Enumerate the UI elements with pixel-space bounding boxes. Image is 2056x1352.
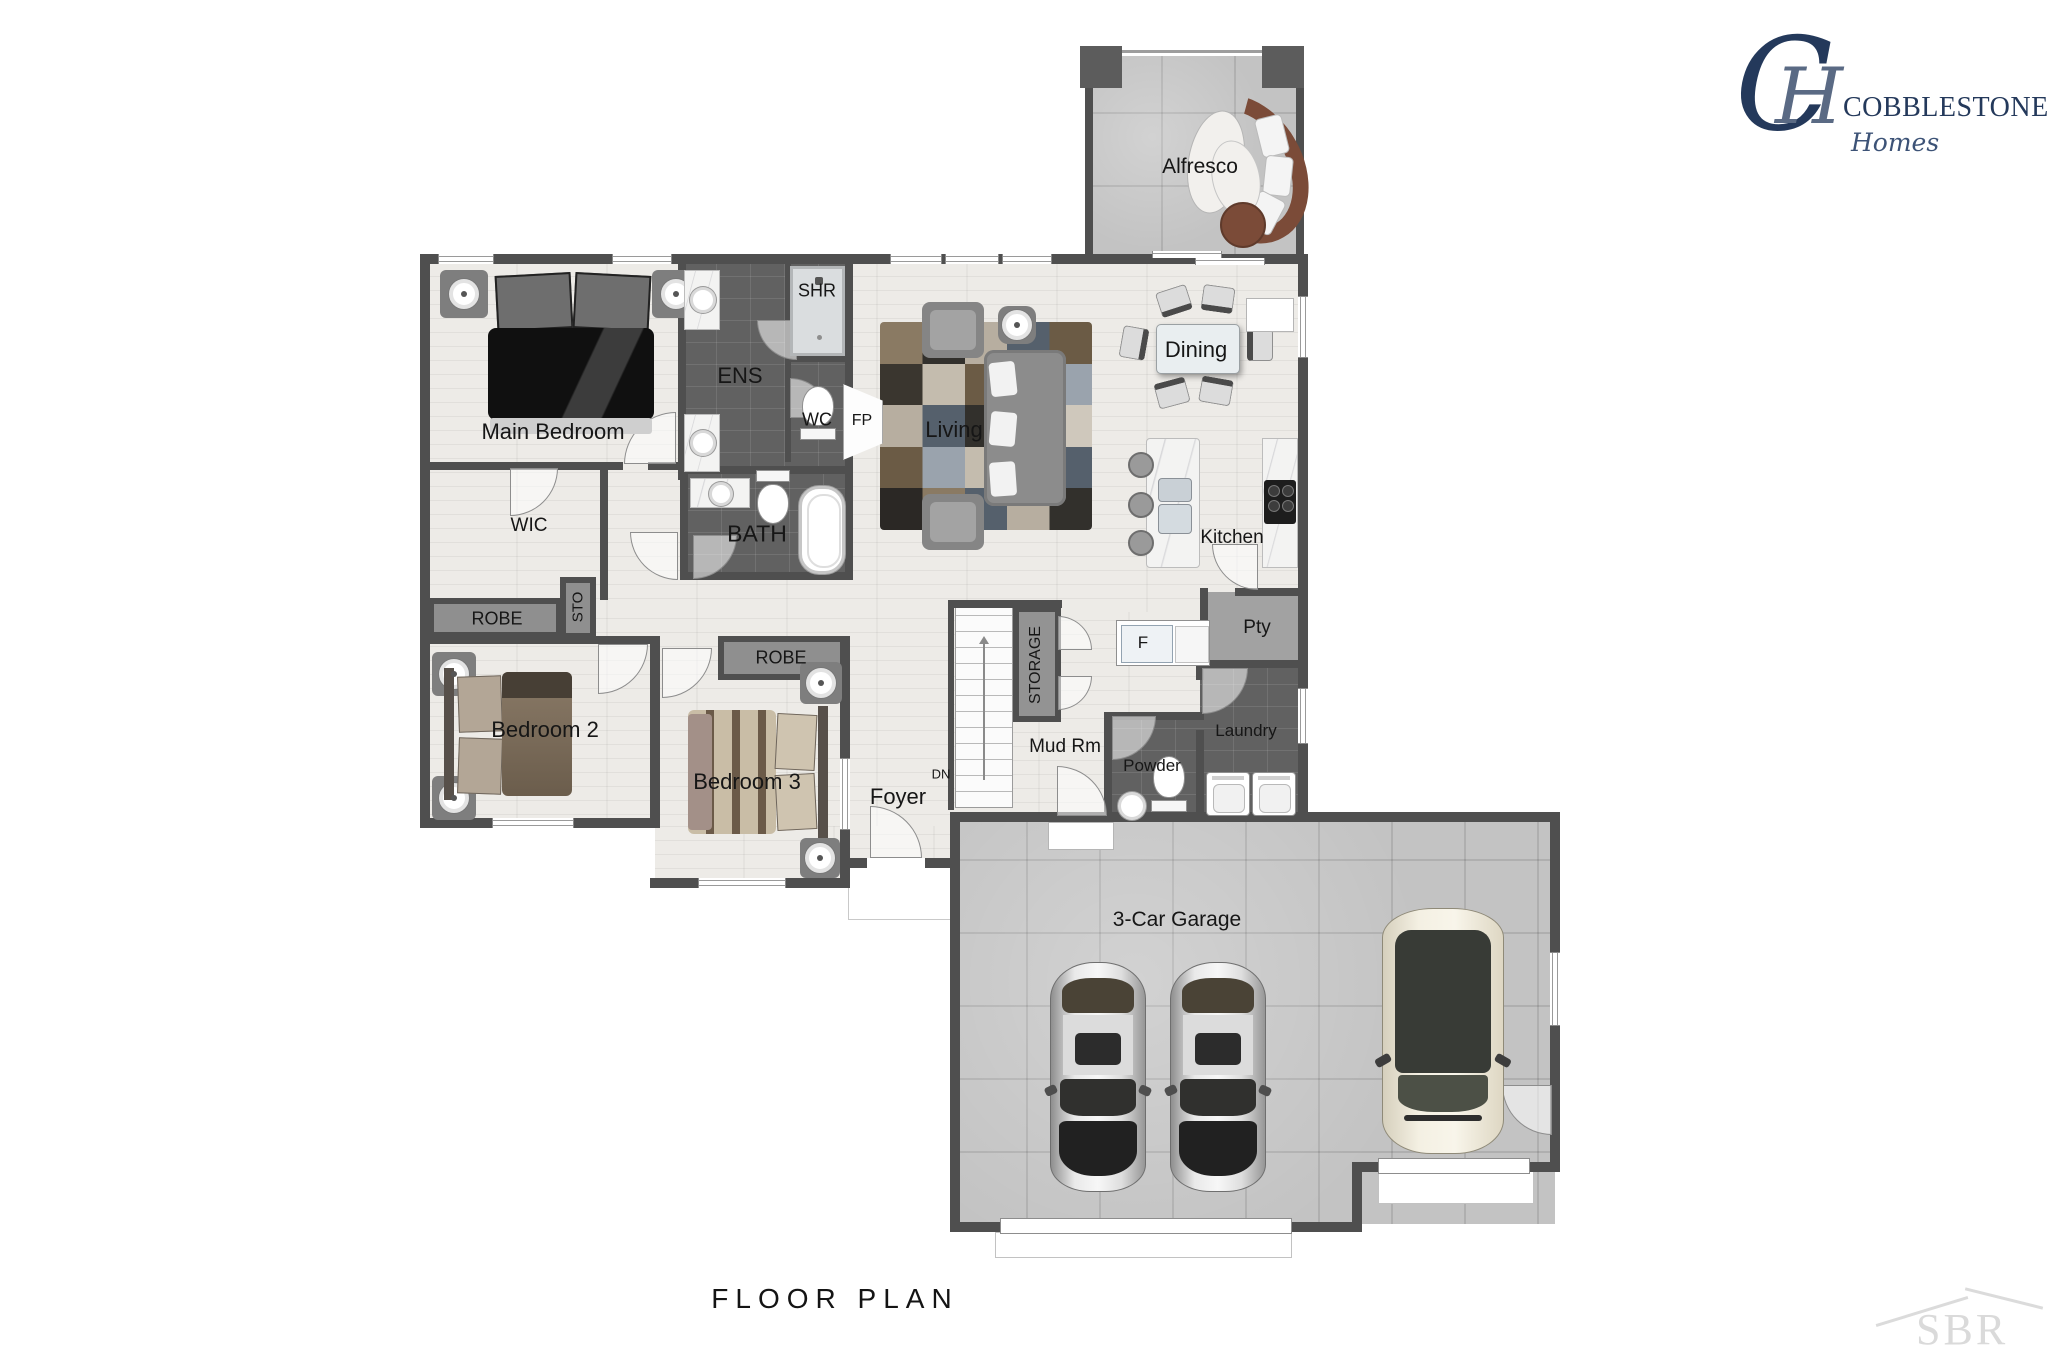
wall-laundry-top bbox=[1196, 660, 1308, 668]
bathtub-inner bbox=[807, 494, 841, 568]
car-sedan-2 bbox=[1170, 962, 1266, 1192]
sliding-door-alfresco-b bbox=[1195, 258, 1265, 265]
bath-basin bbox=[709, 482, 733, 506]
wall-foyer-bottom-l bbox=[845, 858, 867, 868]
label-fp: FP bbox=[852, 412, 872, 430]
sink-bowl-large bbox=[1158, 504, 1192, 534]
ens-basin-top bbox=[690, 287, 716, 313]
main-bed-pillow-right bbox=[573, 272, 652, 332]
window-dining-right bbox=[1298, 296, 1308, 358]
suv-roof-glass bbox=[1395, 930, 1490, 1073]
car2-sunroof bbox=[1195, 1033, 1241, 1065]
label-laundry: Laundry bbox=[1215, 721, 1276, 741]
window-mainbed-2 bbox=[612, 254, 672, 264]
car2-windshield bbox=[1180, 1079, 1257, 1116]
bed3-headboard bbox=[818, 706, 828, 838]
armchair-bottom bbox=[922, 494, 984, 550]
car1-rear-glass bbox=[1062, 978, 1135, 1013]
window-living-3 bbox=[1002, 254, 1052, 264]
burner-4 bbox=[1282, 500, 1294, 512]
kitchen-buffet bbox=[1246, 298, 1294, 332]
main-bed bbox=[488, 266, 654, 436]
window-bed3-right bbox=[840, 758, 850, 830]
label-wc: WC bbox=[802, 410, 832, 431]
car2-hood bbox=[1179, 1121, 1258, 1176]
alfresco-ottoman bbox=[1220, 202, 1266, 248]
nightstand-bed3-bottom bbox=[800, 838, 840, 878]
kitchen-stool-3 bbox=[1128, 530, 1154, 556]
stairs-up-arrow-icon bbox=[983, 640, 985, 780]
page-title: FLOOR PLAN bbox=[711, 1283, 958, 1315]
cobblestone-logo: C H COBBLESTONE Homes bbox=[1735, 40, 2045, 180]
cooktop bbox=[1264, 480, 1296, 524]
label-shr: SHR bbox=[798, 281, 836, 302]
window-bed3 bbox=[698, 878, 786, 888]
powder-basin bbox=[1118, 792, 1146, 820]
burner-3 bbox=[1268, 500, 1280, 512]
logo-name: COBBLESTONE bbox=[1843, 92, 2049, 124]
main-bed-duvet bbox=[488, 328, 654, 420]
label-dn: DN bbox=[932, 767, 951, 782]
window-bed2 bbox=[492, 818, 574, 828]
window-garage-right bbox=[1550, 952, 1560, 1026]
window-mainbed-1 bbox=[438, 254, 494, 264]
window-living-2 bbox=[945, 254, 999, 264]
bed3-pillow-a bbox=[775, 713, 818, 771]
ens-basin-bottom bbox=[690, 430, 716, 456]
sofa-pillow-2 bbox=[989, 411, 1018, 447]
main-bed-pillow-left bbox=[495, 272, 574, 332]
label-robe-bed3: ROBE bbox=[755, 648, 806, 669]
label-wic: WIC bbox=[511, 515, 548, 537]
wall-garage-step bbox=[1352, 1162, 1362, 1232]
label-bath: BATH bbox=[727, 521, 787, 548]
ens-vanity-bottom bbox=[684, 414, 720, 472]
garage-apron-left bbox=[995, 1232, 1292, 1258]
wall-bath-left bbox=[680, 474, 688, 580]
label-main-bedroom: Main Bedroom bbox=[481, 419, 624, 445]
bed2-headboard bbox=[444, 668, 454, 800]
washer bbox=[1206, 772, 1250, 816]
label-sto: STO bbox=[570, 592, 587, 623]
fridge-counter bbox=[1175, 626, 1209, 663]
fridge-nook bbox=[1116, 620, 1210, 666]
logo-monogram-h: H bbox=[1775, 58, 1843, 136]
car1-sunroof bbox=[1075, 1033, 1121, 1065]
label-mud-rm: Mud Rm bbox=[1029, 736, 1101, 758]
floor-plan-canvas: Alfresco Dining Living Main Bedroom ENS … bbox=[0, 0, 2056, 1352]
shower bbox=[790, 266, 845, 356]
logo-tagline: Homes bbox=[1851, 128, 1939, 157]
dining-chair-4 bbox=[1198, 375, 1234, 406]
label-alfresco: Alfresco bbox=[1162, 155, 1238, 179]
alfresco-cushion-2 bbox=[1262, 155, 1294, 198]
label-pantry: Pty bbox=[1243, 617, 1270, 639]
window-living-1 bbox=[890, 254, 942, 264]
wall-laundry-left-b bbox=[1196, 730, 1204, 818]
label-ens: ENS bbox=[717, 363, 762, 389]
label-bedroom2: Bedroom 2 bbox=[491, 717, 599, 743]
label-dining: Dining bbox=[1165, 337, 1227, 363]
label-bedroom3: Bedroom 3 bbox=[693, 769, 801, 795]
kitchen-stool-2 bbox=[1128, 492, 1154, 518]
sofa-pillow-1 bbox=[988, 361, 1017, 398]
bathtub bbox=[799, 486, 845, 574]
car2-rear-glass bbox=[1182, 978, 1255, 1013]
alfresco-top-edge bbox=[1122, 50, 1262, 53]
living-sofa bbox=[984, 350, 1066, 506]
burner-2 bbox=[1282, 485, 1294, 497]
label-storage: STORAGE bbox=[1027, 626, 1045, 704]
front-door-opening bbox=[867, 858, 925, 868]
alfresco-pillar-left bbox=[1080, 46, 1122, 88]
watermark-text: SBR bbox=[1916, 1304, 2008, 1352]
sink-bowl-small bbox=[1158, 478, 1192, 502]
dryer bbox=[1252, 772, 1296, 816]
armchair-bottom-cushion bbox=[930, 502, 976, 542]
wall-bed2-right bbox=[650, 644, 660, 828]
suv-wiper-strip bbox=[1404, 1115, 1482, 1121]
label-robe-bed2: ROBE bbox=[471, 609, 522, 630]
wall-stairs-top bbox=[950, 600, 1062, 608]
garage-door-left bbox=[1000, 1218, 1292, 1234]
armchair-top bbox=[922, 302, 984, 358]
label-kitchen: Kitchen bbox=[1200, 527, 1263, 549]
wall-left bbox=[420, 254, 430, 828]
car-sedan-1 bbox=[1050, 962, 1146, 1192]
wall-bed2-top bbox=[420, 636, 660, 644]
wall-garage-left bbox=[950, 812, 960, 1232]
car1-windshield bbox=[1060, 1079, 1137, 1116]
dining-chair-2 bbox=[1200, 284, 1235, 314]
label-fridge: F bbox=[1138, 633, 1148, 653]
label-foyer: Foyer bbox=[870, 784, 926, 810]
burner-1 bbox=[1268, 485, 1280, 497]
sbr-watermark: SBR bbox=[1878, 1282, 2048, 1352]
label-living: Living bbox=[925, 417, 982, 443]
front-porch bbox=[848, 866, 958, 920]
bath-toilet-tank bbox=[756, 470, 790, 482]
kitchen-stool-1 bbox=[1128, 452, 1154, 478]
bed2-throw bbox=[502, 672, 572, 698]
garage-door-right bbox=[1378, 1158, 1530, 1174]
alfresco-pillar-right bbox=[1262, 46, 1304, 88]
bath-vanity bbox=[690, 478, 750, 508]
label-garage: 3-Car Garage bbox=[1113, 908, 1241, 932]
dining-chair-3 bbox=[1247, 329, 1273, 361]
car-suv bbox=[1382, 908, 1504, 1154]
garage-entry-step bbox=[1048, 822, 1114, 850]
suv-windshield bbox=[1398, 1075, 1488, 1112]
label-powder: Powder bbox=[1123, 756, 1181, 776]
bath-toilet bbox=[754, 470, 792, 526]
wall-wic-right bbox=[600, 470, 608, 600]
powder-toilet-tank bbox=[1151, 800, 1187, 812]
wall-pantry-top bbox=[1235, 588, 1308, 596]
shower-drain-icon bbox=[817, 335, 822, 340]
dining-chair-6 bbox=[1118, 325, 1149, 361]
armchair-top-cushion bbox=[930, 310, 976, 350]
living-side-table bbox=[998, 306, 1036, 344]
bed2-pillow-b bbox=[457, 737, 503, 795]
sofa-pillow-3 bbox=[989, 461, 1017, 497]
island-sink bbox=[1158, 478, 1190, 532]
window-laundry-right bbox=[1298, 688, 1308, 744]
nightstand-main-left bbox=[440, 270, 488, 318]
car1-hood bbox=[1059, 1121, 1138, 1176]
sliding-door-alfresco-a bbox=[1152, 251, 1222, 258]
ens-vanity-top bbox=[684, 270, 720, 330]
bath-toilet-bowl bbox=[757, 484, 789, 524]
